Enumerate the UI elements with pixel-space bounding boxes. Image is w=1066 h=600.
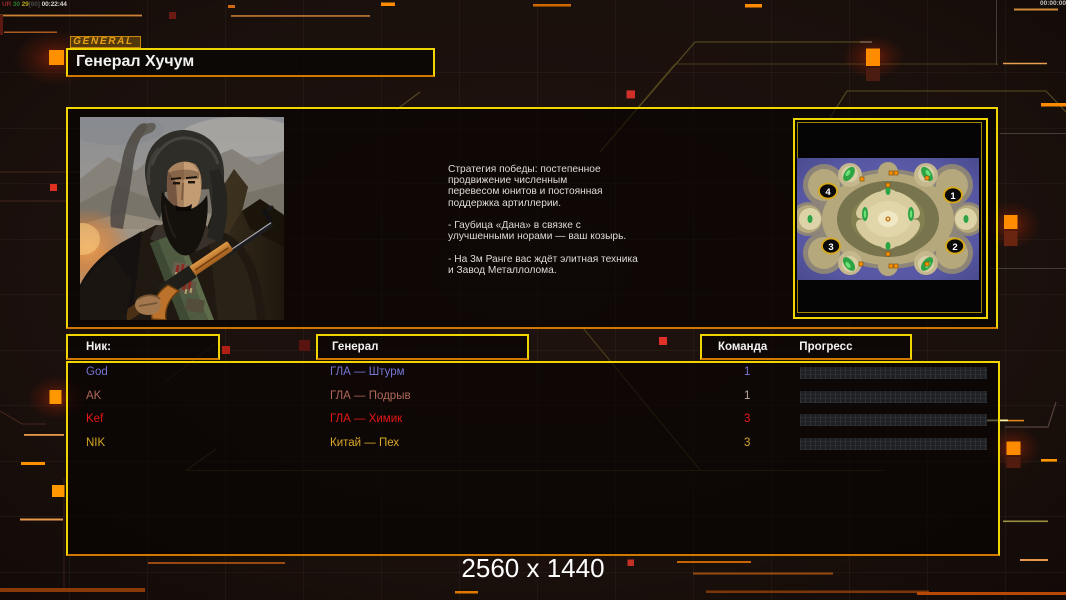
- svg-text:2: 2: [952, 242, 957, 253]
- svg-text:3: 3: [828, 242, 833, 253]
- svg-text:1: 1: [950, 191, 956, 202]
- svg-text:4: 4: [825, 187, 831, 198]
